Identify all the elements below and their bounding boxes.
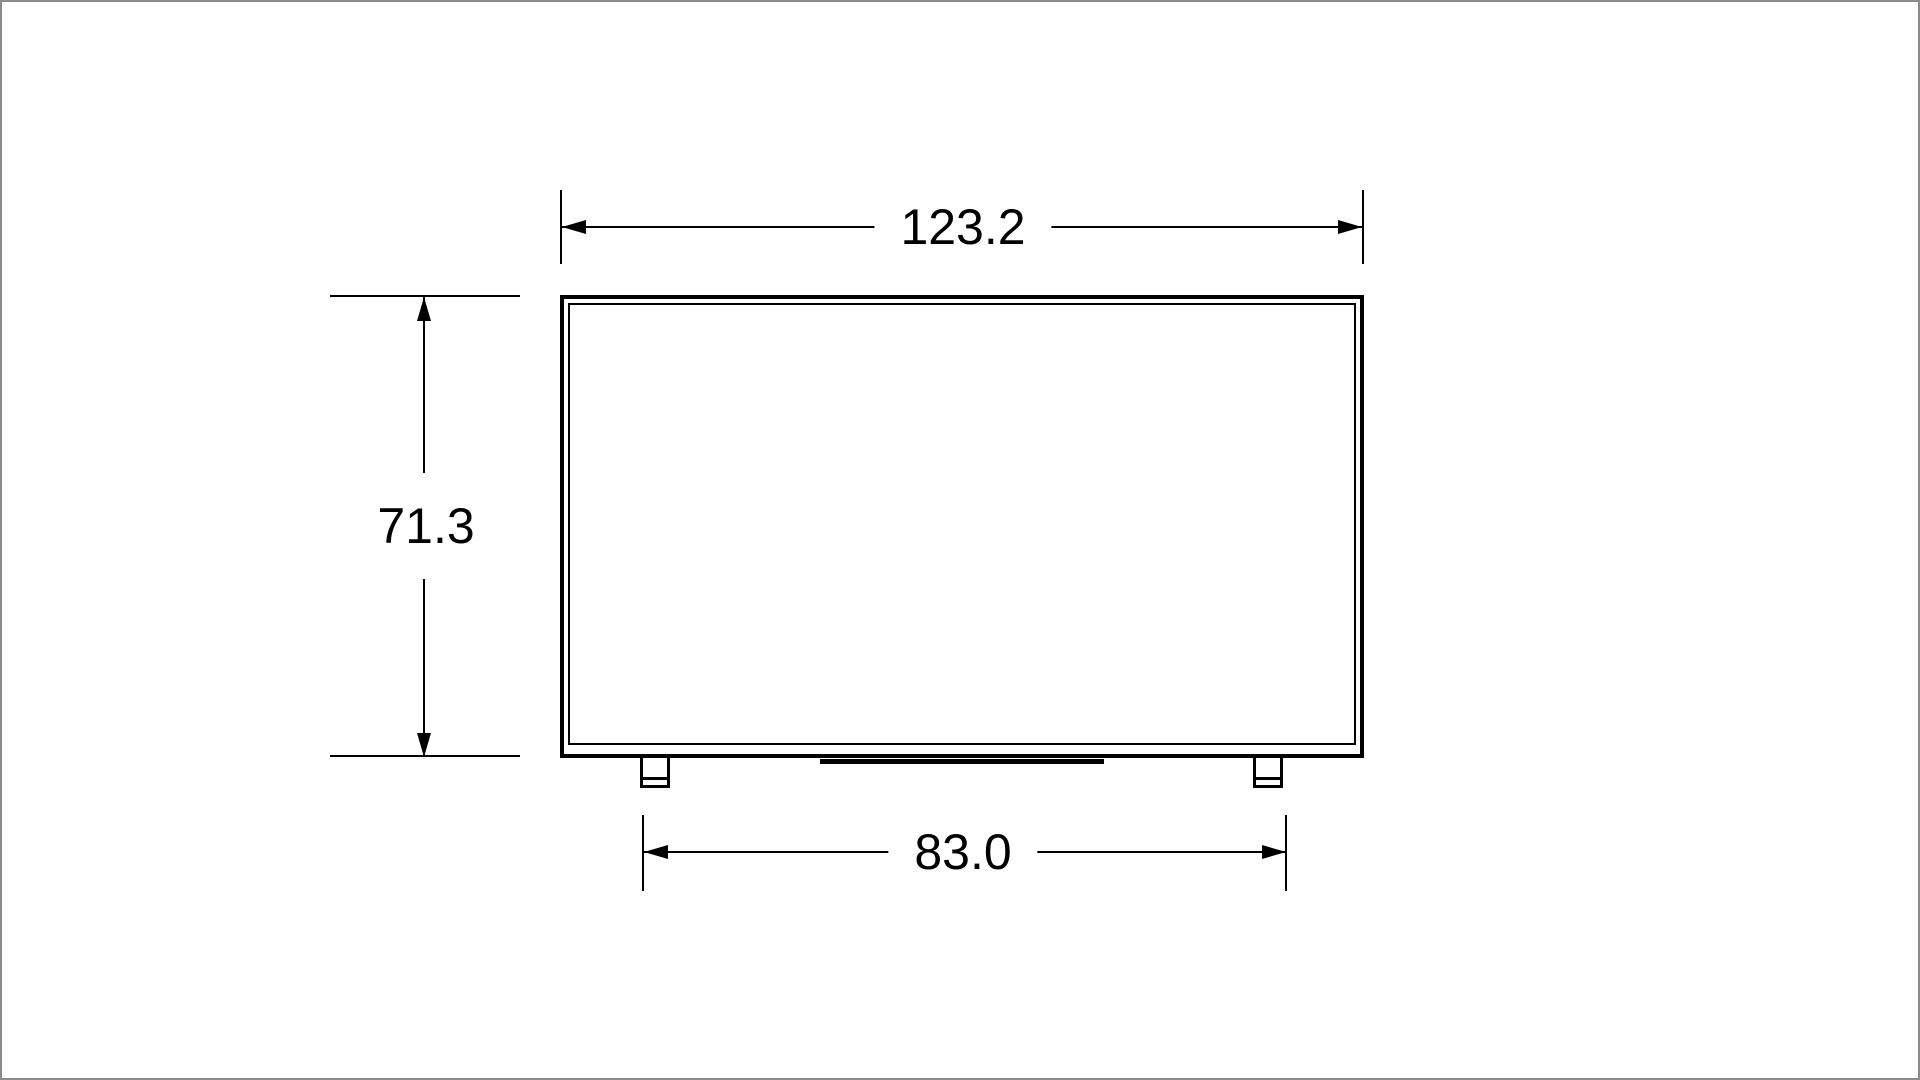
stand-width-dim-arrow-left-icon xyxy=(644,845,668,859)
tv-right-foot xyxy=(1253,755,1283,788)
tv-stand-base-bar xyxy=(820,759,1104,764)
tv-left-foot xyxy=(640,755,670,788)
width-dim-arrow-left-icon xyxy=(562,220,586,234)
width-dim-label: 123.2 xyxy=(874,200,1051,254)
stand-width-dim-arrow-right-icon xyxy=(1262,845,1286,859)
stand-width-dim-label: 83.0 xyxy=(888,825,1037,879)
width-dim-arrow-right-icon xyxy=(1338,220,1362,234)
tv-screen xyxy=(568,303,1356,745)
height-dim-arrow-up-icon xyxy=(417,297,431,321)
left-foot-pad-line xyxy=(643,777,667,780)
right-foot-pad-line xyxy=(1256,777,1280,780)
width-dim-extension-line-right xyxy=(1362,190,1364,264)
drawing-canvas: 123.2 71.3 83.0 xyxy=(0,0,1920,1080)
height-dim-arrow-down-icon xyxy=(417,733,431,757)
height-dim-label: 71.3 xyxy=(365,473,486,579)
